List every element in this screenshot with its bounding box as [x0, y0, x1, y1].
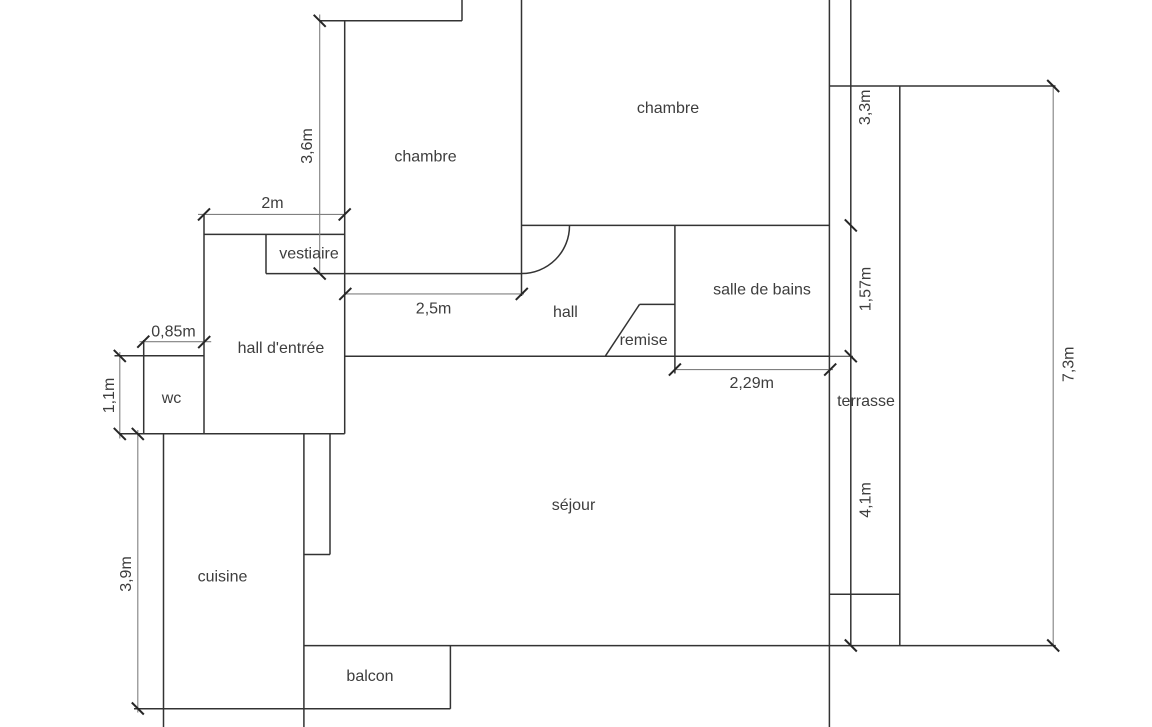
svg-text:2,5m: 2,5m: [416, 301, 452, 318]
svg-text:3,9m: 3,9m: [118, 556, 135, 592]
svg-text:cuisine: cuisine: [198, 569, 248, 586]
svg-text:balcon: balcon: [346, 668, 393, 685]
svg-text:7,3m: 7,3m: [1061, 347, 1078, 383]
svg-text:chambre: chambre: [394, 149, 456, 166]
svg-text:4,1m: 4,1m: [858, 482, 875, 518]
svg-text:1,1m: 1,1m: [101, 378, 118, 414]
svg-text:chambre: chambre: [637, 100, 699, 117]
svg-text:hall d'entrée: hall d'entrée: [238, 340, 325, 357]
svg-text:wc: wc: [161, 390, 182, 407]
svg-text:séjour: séjour: [552, 497, 596, 514]
svg-text:salle de bains: salle de bains: [713, 282, 811, 299]
svg-text:3,6m: 3,6m: [299, 128, 316, 164]
svg-text:2m: 2m: [261, 195, 283, 212]
svg-text:3,3m: 3,3m: [857, 90, 874, 126]
svg-text:hall: hall: [553, 304, 578, 321]
svg-text:1,57m: 1,57m: [858, 267, 875, 311]
svg-text:remise: remise: [620, 332, 668, 349]
svg-text:terrasse: terrasse: [837, 393, 895, 410]
svg-text:vestiaire: vestiaire: [279, 246, 339, 263]
svg-text:2,29m: 2,29m: [729, 375, 773, 392]
svg-text:0,85m: 0,85m: [151, 324, 195, 341]
